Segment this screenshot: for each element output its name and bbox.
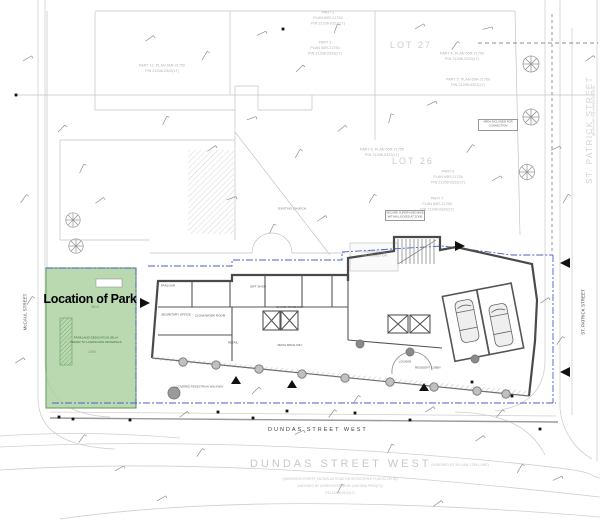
- street-label-st-patrick: ST. PATRICK STREET: [580, 282, 587, 342]
- siteplan-linework: [0, 0, 600, 522]
- parcel-label-part2: PART 2 PLAN 66R-21750 PIN 21208-0321(LT): [298, 10, 358, 26]
- parcel-label-part3: PART 3 PLAN 66R-21750 PIN 21208-0320(LT): [295, 40, 355, 56]
- parcel-label-lot26: LOT 26: [392, 156, 434, 166]
- dundas-widened-note: (WIDENED BY BY-LAW 1789-LANE): [430, 463, 490, 468]
- dundas-pin-label: PIN 21208-0310(LT): [280, 491, 400, 496]
- park-dim-mid: 1300: [62, 350, 122, 355]
- connection-note: AREA INCLUDED FOR CONNECTION: [468, 120, 528, 128]
- dundas-anderson-note: (ANDERSON STREET SHOWN AS ROAD ON REGIST…: [280, 477, 400, 482]
- connection-mid-note: AREA INCLUDED FOR CONNECTION: [344, 250, 404, 258]
- site-plan: Location of Park 5815 PARKLAND DEDICATIO…: [0, 0, 600, 522]
- room-label-resident-lobby: RESIDENT LOBBY: [398, 366, 458, 370]
- parcel-label-part6: PART 6 PLAN 66R-21755 PIN 21208-0322(LT): [418, 169, 478, 185]
- street-label-dundas: DUNDAS STREET WEST: [268, 426, 328, 434]
- parcel-line: PIN 21208-0321(LT): [298, 21, 358, 26]
- parcel-label-part5: PART 5, PLAN 66R-21750 PIN 21208-0322(LT…: [438, 77, 498, 88]
- parcel-label-part4: PART 4, PLAN 66R-21750 PIN 21208-0320(LT…: [432, 51, 492, 62]
- street-label-mccaul: McCAUL STREET: [22, 282, 29, 342]
- car-icon: [454, 299, 480, 344]
- dundas-bylaw-note: (WIDENED BY UNREGISTERED BY-LAW 0808 PR5…: [280, 484, 400, 489]
- existing-church-label: EXISTING CHURCH: [262, 207, 322, 211]
- room-label-work-room: CLOAK/WORK ROOM: [180, 314, 240, 318]
- parcel-line: PIN 21208-0322(LT): [438, 82, 498, 87]
- note-line: CONNECTION: [468, 124, 528, 128]
- courtyard-steps-hatch: [188, 150, 234, 234]
- walkway-label: COVERED PEDESTRIAN WALKWAY: [170, 385, 230, 389]
- colonnade-columns: [168, 340, 510, 399]
- park-location-label: Location of Park: [30, 292, 150, 306]
- parcel-label-lot27: LOT 27: [390, 40, 432, 50]
- room-label-retail-elev: RETAIL SPACE ONLY: [260, 344, 320, 348]
- car-icon: [488, 303, 514, 348]
- street-label-dundas-survey: DUNDAS STREET WEST: [250, 458, 432, 470]
- parcel-label-part12: PART 12, PLAN 66R-21750 PIN 21208-0320(L…: [132, 63, 192, 74]
- parcel-line: PIN 21208-0320(LT): [132, 68, 192, 73]
- room-label-parlour: PARLOUR: [138, 284, 198, 288]
- parcel-line: PIN 21208-0320(LT): [432, 56, 492, 61]
- room-label-church-elev: CHURCH SPACE ONLY: [260, 306, 320, 310]
- room-label-gift-shop: GIFT SHOP: [228, 285, 288, 289]
- parking-stalls: [442, 283, 523, 361]
- room-label-retail: RETAIL: [203, 341, 263, 345]
- parcel-line: PIN 21208-0320(LT): [295, 51, 355, 56]
- bike-storage-note: SECURE SUPERVISED BIKE WITHIN LOCKED AT …: [375, 211, 435, 219]
- park-dim-top: 5815: [65, 305, 125, 310]
- parcel-line: PIN 21208-0322(LT): [418, 180, 478, 185]
- note-line: FOR CONNECTION: [344, 254, 404, 258]
- park-note-line2: REFER TO LANDSCAPE DRAWINGS: [66, 340, 126, 344]
- park-dedication-note: PARKLAND DEDICATION 281m² REFER TO LANDS…: [66, 336, 126, 345]
- room-label-lounge: LOUNGE: [375, 360, 435, 364]
- note-line: WITHIN LOCKED AT ZONE: [375, 215, 435, 219]
- park-note-box: [96, 279, 122, 287]
- st-patrick-bylaw-note: (BY BY-LAW 7435-UNREGISTERED): [592, 81, 596, 141]
